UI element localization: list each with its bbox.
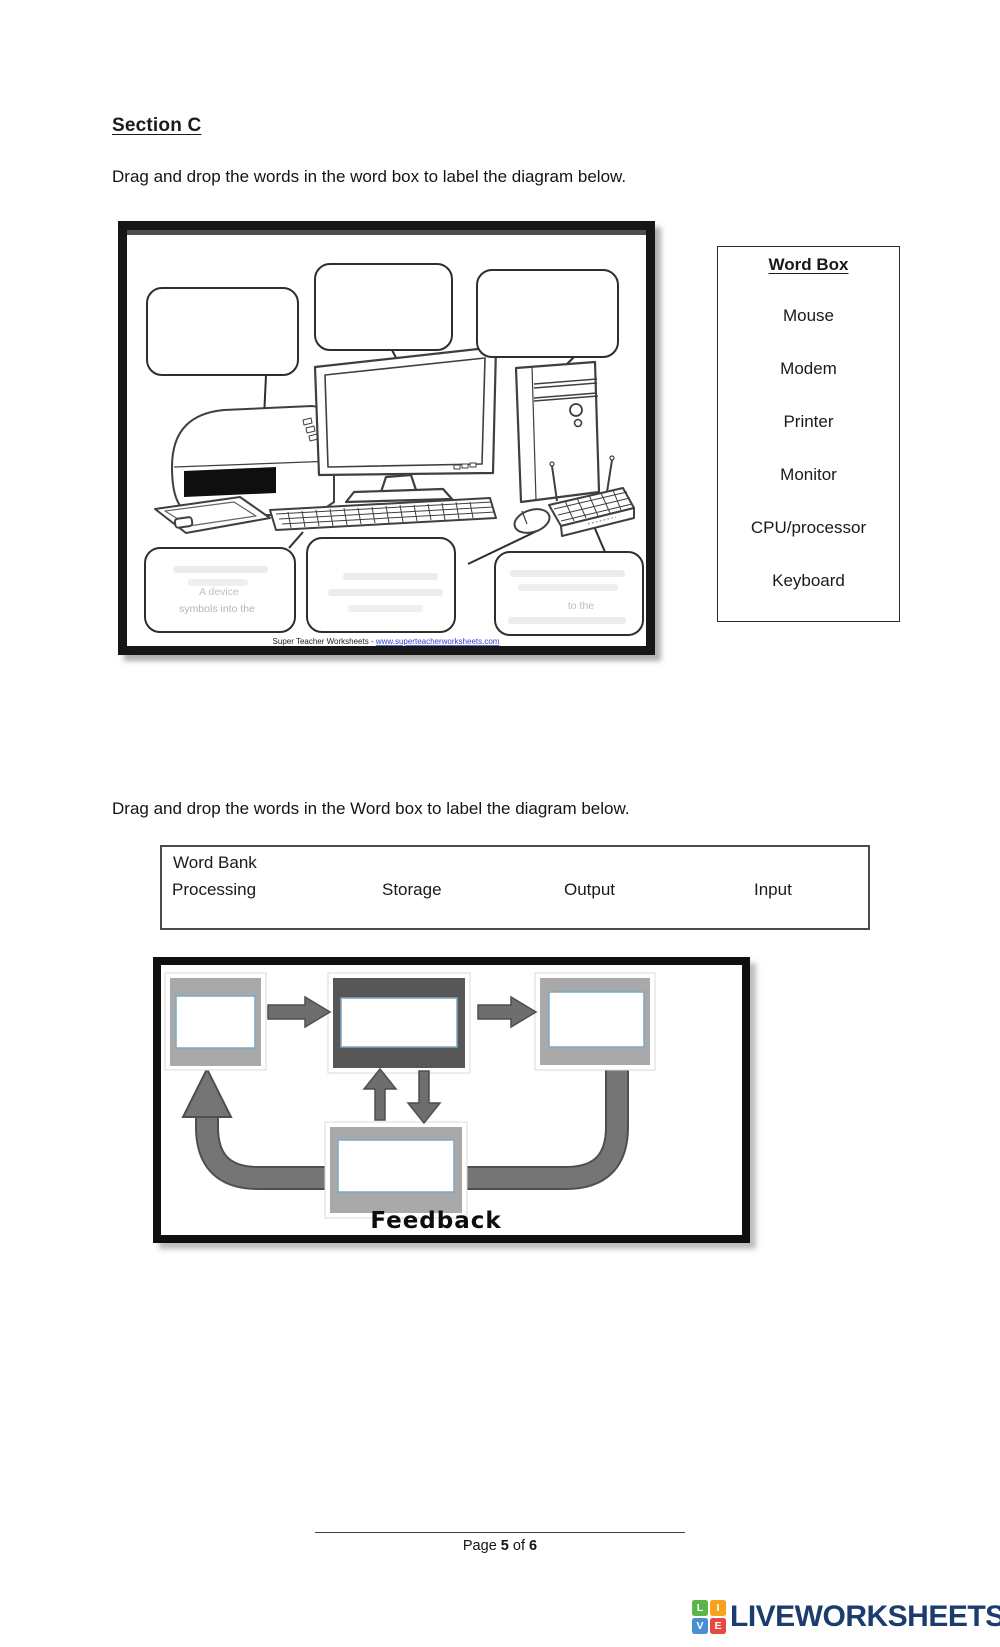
liveworksheets-logo[interactable]: L I V E LIVEWORKSHEETS [692, 1600, 1000, 1634]
word-chip-processing[interactable]: Processing [172, 880, 256, 900]
word-chip-modem[interactable]: Modem [718, 359, 899, 379]
logo-tile-v: V [692, 1618, 708, 1634]
flow-card-center [328, 973, 470, 1073]
attribution: Super Teacher Worksheets - www.superteac… [273, 637, 500, 646]
flow-card-bottom [325, 1122, 467, 1218]
computer-parts-diagram: A device symbols into the to the Super T… [118, 221, 655, 655]
logo-tile-l: L [692, 1600, 708, 1616]
svg-text:A device: A device [199, 586, 239, 598]
logo-tile-i: I [710, 1600, 726, 1616]
drop-box-bottom-center[interactable] [307, 538, 455, 632]
svg-text:to the: to the [568, 600, 594, 612]
word-chip-cpu-processor[interactable]: CPU/processor [718, 518, 899, 538]
flow-card-top-right [535, 973, 655, 1070]
flow-drop-box-bottom[interactable] [338, 1140, 454, 1192]
word-bank-panel: Word Bank Processing Storage Output Inpu… [160, 845, 870, 930]
feedback-flow-diagram: Feedback [153, 957, 750, 1243]
word-chip-keyboard[interactable]: Keyboard [718, 571, 899, 591]
liveworksheets-logo-icon: L I V E [692, 1600, 726, 1634]
feedback-label: Feedback [370, 1208, 501, 1234]
page-footer: Page 5 of 6 [0, 1532, 1000, 1554]
attribution-link[interactable]: www.superteacherworksheets.com [375, 637, 500, 646]
svg-text:symbols into the: symbols into the [179, 603, 255, 615]
attribution-text: Super Teacher Worksheets - [273, 637, 376, 646]
word-chip-output[interactable]: Output [564, 880, 615, 900]
flow-card-top-left [165, 973, 266, 1070]
flow-drop-box-top-left[interactable] [176, 996, 255, 1048]
page-number-text: Page 5 of 6 [0, 1538, 1000, 1554]
section-title: Section C [112, 115, 201, 137]
total-pages: 6 [529, 1538, 537, 1554]
word-chip-input[interactable]: Input [754, 880, 792, 900]
instruction-1: Drag and drop the words in the word box … [112, 167, 626, 187]
cpu-tower-illustration [516, 362, 599, 502]
of-label: of [509, 1538, 529, 1554]
brand-name: LIVEWORKSHEETS [730, 1600, 1000, 1634]
word-chip-storage[interactable]: Storage [382, 880, 442, 900]
drop-box-top-left[interactable] [147, 288, 298, 375]
drop-box-top-right[interactable] [477, 270, 618, 357]
word-chip-monitor[interactable]: Monitor [718, 465, 899, 485]
worksheet-page: Section C Drag and drop the words in the… [0, 0, 1000, 1647]
instruction-2: Drag and drop the words in the Word box … [112, 799, 630, 819]
drop-box-top-center[interactable] [315, 264, 452, 350]
flow-drop-box-top-right[interactable] [549, 992, 644, 1047]
word-box-title: Word Box [718, 255, 899, 275]
flow-drop-box-center[interactable] [341, 998, 457, 1047]
word-chip-printer[interactable]: Printer [718, 412, 899, 432]
diagram1-frame-stripe [127, 230, 646, 235]
word-bank-title: Word Bank [173, 853, 257, 873]
word-box-panel: Word Box Mouse Modem Printer Monitor CPU… [717, 246, 900, 622]
footer-rule [315, 1532, 685, 1533]
page-label: Page [463, 1538, 501, 1554]
page-number: 5 [501, 1538, 509, 1554]
word-chip-mouse[interactable]: Mouse [718, 306, 899, 326]
logo-tile-e: E [710, 1618, 726, 1634]
